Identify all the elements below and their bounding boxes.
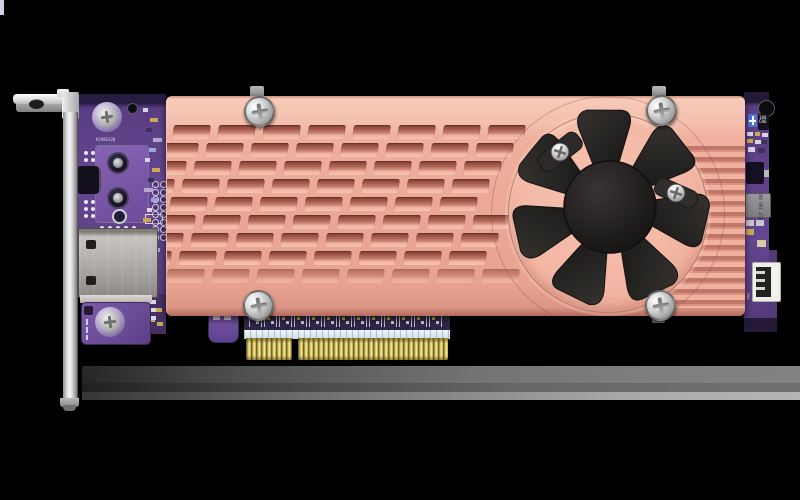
bracket-foot-tip: [63, 405, 76, 411]
bracket-screw-slot: [29, 99, 44, 109]
expansion-card-photo: K298CA28: [0, 0, 800, 500]
low-profile-bracket: [0, 0, 800, 500]
bracket-vertical-bar: [63, 112, 78, 402]
